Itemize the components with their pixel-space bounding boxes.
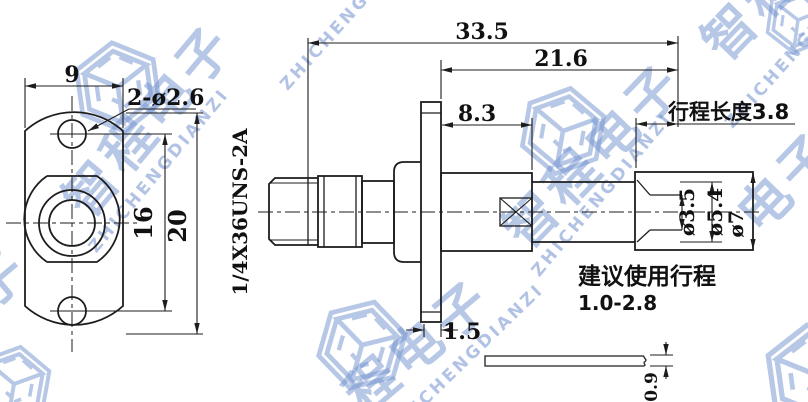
thread-spec-label: 1/4X36UNS-2A [228, 128, 252, 296]
dim-tube-diameter: ø7 [724, 210, 748, 237]
dim-flange-width: 9 [64, 62, 79, 88]
dim-body-length: 8.3 [458, 101, 496, 127]
dim-strip-thickness: 0.9 [642, 372, 662, 402]
strip-outline [485, 356, 646, 366]
watermark-hex-logo [0, 341, 53, 402]
dim-overall-length: 33.5 [455, 19, 509, 45]
dim-hole-spacing: 16 [129, 206, 158, 239]
watermark-brand-cn-fragment: 子 [0, 237, 43, 320]
note-recommended-travel-title: 建议使用行程 [578, 263, 716, 290]
dim-mount-holes: 2-ø2.6 [127, 85, 204, 111]
notes: 建议使用行程 1.0-2.8 [578, 263, 716, 315]
dim-flange-height: 20 [163, 209, 192, 242]
dim-flange-thickness: 1.5 [443, 319, 481, 345]
detail-view: 0.9 [485, 342, 673, 402]
watermark-brand-en: ZHICHENGDIANZI [276, 0, 430, 95]
engineering-drawing-canvas: 智程电子 智程电子 程电子 智程 电子 子 ZHICHENGDIANZI ZHI… [0, 0, 808, 402]
note-recommended-travel-range: 1.0-2.8 [578, 291, 657, 315]
watermark-hex-logo [765, 319, 808, 402]
dim-length-to-tip: 21.6 [534, 46, 588, 72]
watermark-brand-cn: 智程电子 [493, 52, 697, 261]
dim-bore-diameter: ø3.5 [675, 188, 699, 236]
dim-travel-length: 行程长度3.8 [667, 100, 789, 124]
